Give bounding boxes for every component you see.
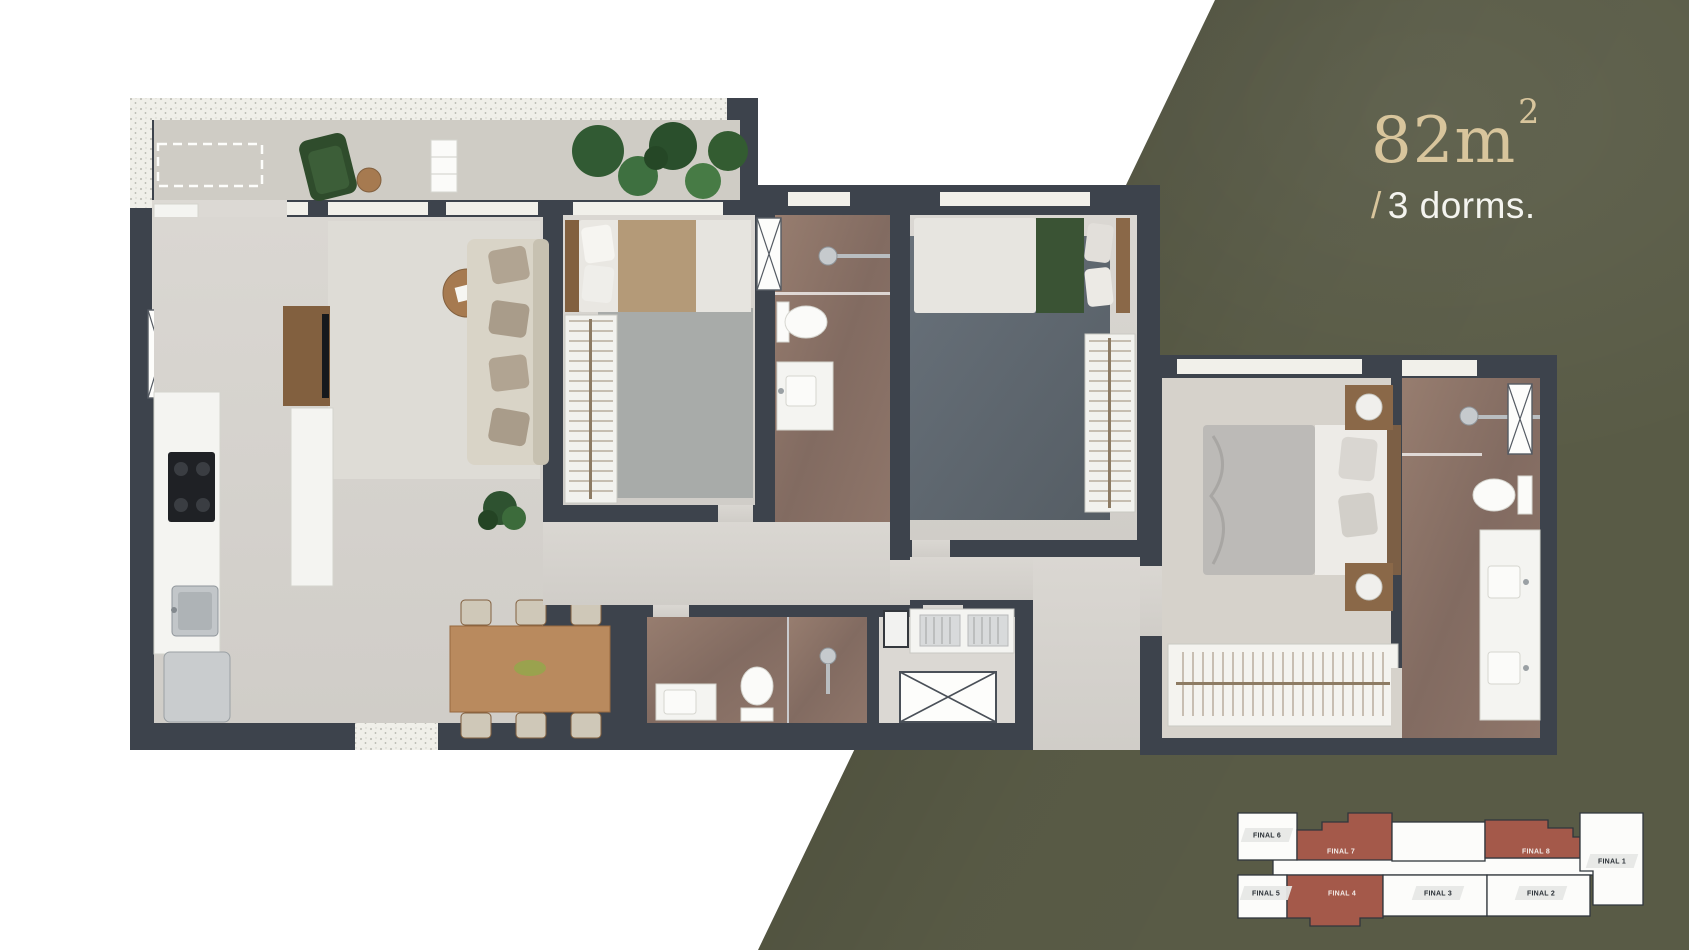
dining-set <box>450 600 610 738</box>
area-value: 82m <box>1371 104 1516 178</box>
keyplan-badge-final-7: FINAL 7 <box>1327 849 1355 856</box>
master-bathroom <box>1402 378 1540 738</box>
area-superscript: 2 <box>1518 92 1540 131</box>
page: 82m2 /3 dorms. FINAL 6 FINAL 7 FINAL 8 F… <box>0 0 1689 950</box>
building-key-plan: FINAL 6 FINAL 7 FINAL 8 FINAL 1 FINAL 5 … <box>1237 806 1647 931</box>
door-opening <box>653 605 689 617</box>
headline: 82m2 /3 dorms. <box>1371 108 1540 227</box>
door-opening <box>718 505 753 522</box>
keyplan-badge-final-6: FINAL 6 <box>1241 828 1294 842</box>
slash-mark: / <box>1371 185 1382 226</box>
refrigerator <box>164 652 230 722</box>
duct-shaft <box>1508 384 1532 454</box>
utility-box <box>884 611 908 647</box>
toilet <box>741 667 773 721</box>
shower-glass <box>775 292 890 295</box>
keyplan-unit-final-4 <box>1287 875 1383 926</box>
master-bedroom <box>1162 378 1402 738</box>
balcony-cabinet <box>431 140 457 192</box>
bathroom-1 <box>757 215 890 560</box>
wardrobe <box>565 315 617 503</box>
balcony <box>154 120 748 203</box>
keyplan-label: FINAL 4 <box>1328 891 1356 898</box>
shower-glass <box>1402 453 1482 456</box>
duct-shaft <box>757 218 781 290</box>
bed <box>1203 425 1401 575</box>
shower-glass <box>787 617 789 723</box>
suite-door-opening <box>1140 566 1162 636</box>
sofa <box>467 239 549 465</box>
service-area-x <box>900 672 996 722</box>
keyplan-badge-final-4: FINAL 4 <box>1328 891 1356 898</box>
dorms-text: 3 dorms. <box>1388 185 1536 226</box>
keyplan-badge-final-8: FINAL 8 <box>1522 849 1550 856</box>
keyplan-label: FINAL 2 <box>1527 891 1555 898</box>
fruit-bowl <box>514 660 546 676</box>
double-vanity <box>1480 530 1540 720</box>
keyplan-label: FINAL 8 <box>1522 849 1550 856</box>
entrance-threshold <box>355 723 438 750</box>
laundry-tank <box>910 609 1014 653</box>
bedroom-1 <box>563 215 755 522</box>
keyplan-badge-final-5: FINAL 5 <box>1240 886 1293 900</box>
keyplan-label: FINAL 1 <box>1598 859 1626 866</box>
toilet <box>1473 476 1532 514</box>
keyplan-badge-final-1: FINAL 1 <box>1586 854 1639 868</box>
kitchen-island <box>291 408 333 586</box>
wardrobe <box>1085 334 1135 512</box>
bed <box>565 220 751 312</box>
floor-plan <box>128 96 1557 756</box>
keyplan-badge-final-3: FINAL 3 <box>1412 886 1465 900</box>
keyplan-label: FINAL 5 <box>1252 891 1280 898</box>
nightstand-top <box>1345 385 1393 430</box>
bath-door-opening <box>1391 668 1402 738</box>
bathroom-2 <box>647 605 867 723</box>
keyplan-label: FINAL 6 <box>1253 833 1281 840</box>
area-label: 82m2 <box>1371 108 1540 175</box>
rug <box>598 308 753 498</box>
vanity <box>777 362 833 430</box>
dorms-label: /3 dorms. <box>1371 185 1540 227</box>
vanity <box>656 684 716 720</box>
keyplan-badge-final-2: FINAL 2 <box>1515 886 1568 900</box>
door-opening <box>912 540 950 557</box>
cooktop <box>168 452 215 522</box>
laundry <box>879 605 1015 723</box>
closet <box>1168 644 1398 726</box>
keyplan-unit-mid <box>1392 822 1485 861</box>
bedroom-2 <box>910 215 1137 557</box>
keyplan-label: FINAL 3 <box>1424 891 1452 898</box>
side-table <box>357 168 381 192</box>
tv <box>322 314 329 398</box>
kitchen-sink <box>171 586 218 636</box>
keyplan-label: FINAL 7 <box>1327 849 1355 856</box>
nightstand-bottom <box>1345 563 1393 611</box>
